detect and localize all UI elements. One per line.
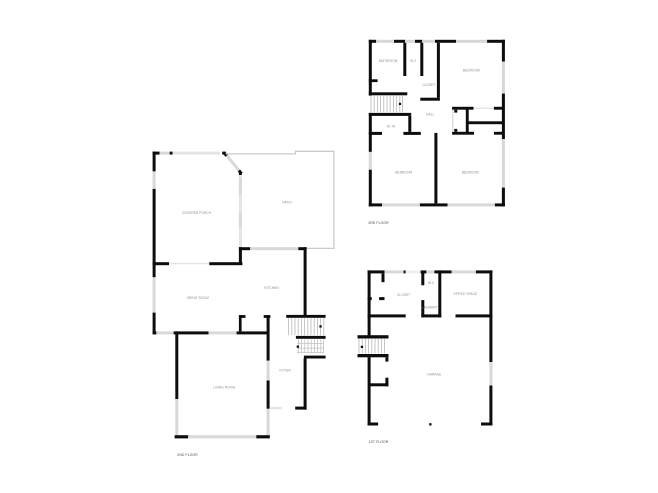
svg-text:GARAGE: GARAGE	[427, 372, 441, 376]
svg-text:HALL: HALL	[426, 113, 434, 117]
svg-text:KITCHEN: KITCHEN	[264, 286, 279, 290]
svg-text:PATIO: PATIO	[282, 201, 292, 205]
svg-text:2ND FLOOR: 2ND FLOOR	[177, 453, 198, 457]
svg-text:CLOSET: CLOSET	[422, 83, 435, 87]
svg-text:LAUNDRY: LAUNDRY	[422, 305, 438, 309]
svg-text:W.C: W.C	[410, 59, 417, 63]
svg-text:3RD FLOOR: 3RD FLOOR	[368, 221, 389, 225]
svg-text:LIVING ROOM: LIVING ROOM	[213, 386, 235, 390]
svg-text:W. IN: W. IN	[387, 124, 396, 128]
svg-text:BEDROOM: BEDROOM	[462, 171, 479, 175]
svg-text:BEDROOM: BEDROOM	[463, 69, 480, 73]
svg-text:BEDROOM: BEDROOM	[395, 171, 412, 175]
svg-text:FOYER: FOYER	[280, 368, 292, 372]
svg-text:CLOSET: CLOSET	[397, 293, 410, 297]
svg-text:1ST FLOOR: 1ST FLOOR	[369, 440, 389, 444]
svg-text:COVERED PORCH: COVERED PORCH	[182, 211, 212, 215]
svg-text:OFFICE SPACE: OFFICE SPACE	[453, 292, 477, 296]
svg-text:BATHROOM: BATHROOM	[379, 59, 398, 63]
svg-text:GREAT ROOM: GREAT ROOM	[187, 296, 209, 300]
svg-text:W.C: W.C	[428, 281, 435, 285]
